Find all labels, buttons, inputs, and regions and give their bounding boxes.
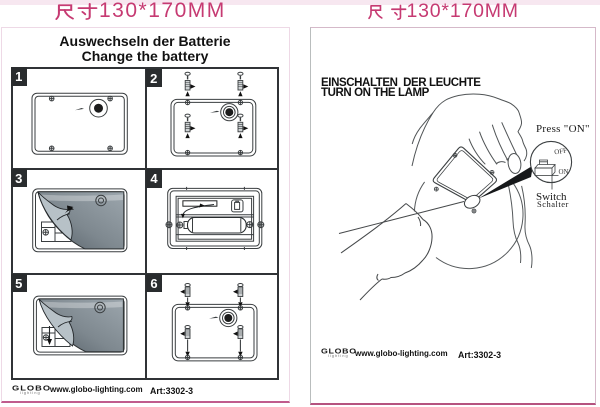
svg-text:ON: ON — [559, 168, 569, 176]
